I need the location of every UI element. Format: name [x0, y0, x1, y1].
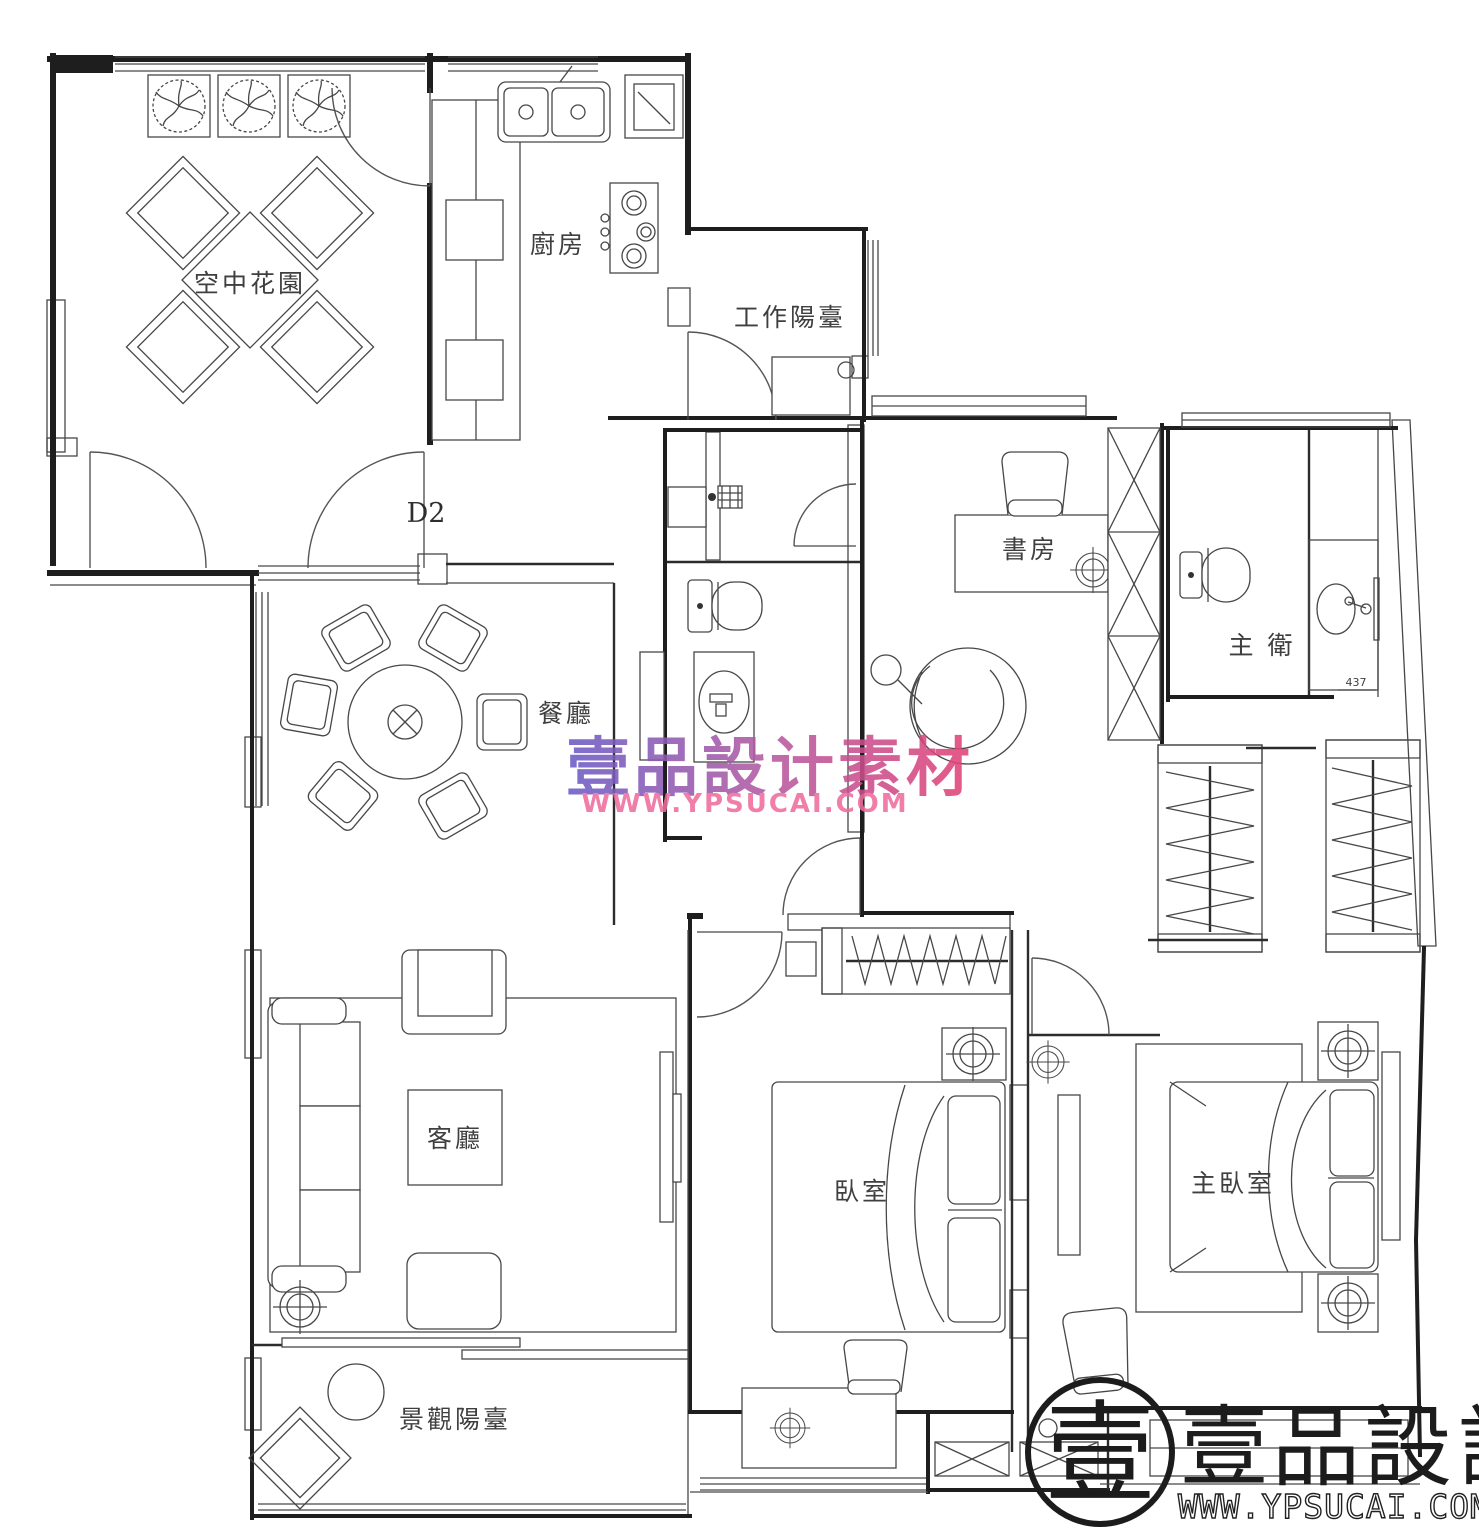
basin — [1309, 540, 1379, 690]
room-label-living: 客廳 — [427, 1124, 483, 1153]
bed — [772, 1082, 1005, 1332]
dining-chair — [305, 759, 380, 833]
kitchen-stove — [601, 183, 658, 273]
closet-a — [1148, 745, 1268, 952]
room-label-master-bedroom: 主臥室 — [1191, 1169, 1275, 1198]
logo-seal-char: 壹 — [1045, 1390, 1155, 1518]
toilet — [688, 580, 762, 632]
shower-head-icon — [708, 486, 742, 508]
lounge-chair — [249, 1407, 351, 1509]
logo: 壹 壹品設計 WWW.YPSUCAI.COM — [1028, 1380, 1479, 1526]
work-balcony-furniture — [772, 357, 854, 415]
lamp-icon — [1026, 1040, 1069, 1083]
bedroom-wardrobe — [822, 928, 1010, 994]
watermark-site-text: WWW.YPSUCAI.COM — [581, 789, 908, 819]
door-code-label: D2 — [407, 498, 446, 529]
ottoman — [407, 1253, 501, 1329]
dimension-437: 437 — [1338, 676, 1376, 690]
door-sky-garden-left — [90, 452, 206, 568]
dresser — [1058, 1095, 1080, 1255]
floor-plan-page: 437 — [0, 0, 1479, 1532]
tree-icon — [218, 75, 280, 137]
kitchen-sink — [498, 66, 610, 142]
room-label-master-bath: 主 衛 — [1229, 631, 1296, 660]
door-shower — [794, 484, 856, 546]
window-bedroom-bottom — [700, 1478, 926, 1490]
door-work-balcony — [688, 332, 776, 420]
window-balcony-bottom — [258, 1504, 686, 1510]
garden-chair — [126, 156, 239, 269]
room-label-study: 書房 — [1002, 535, 1058, 564]
room-label-bedroom: 臥室 — [834, 1177, 890, 1206]
logo-brand-text: 壹品設計 — [1180, 1396, 1479, 1499]
floor-plan-drawing: 437 — [0, 0, 1479, 1532]
tv-cabinet — [660, 1052, 673, 1222]
room-label-view-balcony: 景觀陽臺 — [399, 1405, 511, 1434]
window-master-bath-top — [1182, 413, 1390, 427]
sofa — [268, 998, 360, 1292]
garden-chair — [126, 290, 239, 403]
room-label-kitchen: 廚房 — [530, 230, 586, 259]
door-bathroom — [783, 838, 860, 915]
dining-chair — [280, 673, 339, 737]
window-dining-left — [256, 592, 268, 806]
dimension-label: 437 — [1346, 676, 1367, 689]
garden-chair — [260, 156, 373, 269]
garden-chair — [260, 290, 373, 403]
bedroom-desk — [742, 1340, 907, 1468]
toilet — [1180, 548, 1250, 602]
master-bedroom-furniture — [1026, 1022, 1378, 1395]
room-label-dining: 餐廳 — [538, 699, 594, 728]
study-chair — [1002, 452, 1068, 516]
dining-chair — [416, 602, 489, 673]
armchair — [402, 950, 506, 1034]
window-garden-bottom — [258, 566, 420, 580]
shower-shelf — [668, 487, 706, 527]
study-wardrobe-x — [1108, 428, 1160, 740]
master-bath-fixtures: 437 — [1180, 540, 1379, 690]
window-study-top — [872, 396, 1086, 416]
sliding-door-panel — [462, 1350, 688, 1359]
room-label-work-balcony: 工作陽臺 — [734, 303, 846, 332]
logo-site-text: WWW.YPSUCAI.COM — [1178, 1487, 1479, 1526]
dining-chair — [416, 770, 489, 841]
washing-machine — [772, 357, 850, 415]
sliding-door-panel — [282, 1338, 520, 1347]
window-balcony-right — [868, 240, 878, 356]
closet-b — [1246, 740, 1420, 952]
dining-chair — [319, 602, 392, 673]
bathroom-fixtures — [640, 486, 762, 762]
tv — [673, 1094, 681, 1182]
sky-garden-furniture — [126, 75, 373, 404]
study-furniture — [871, 428, 1160, 764]
bedroom-shelf — [786, 942, 816, 976]
dining-furniture — [280, 602, 527, 841]
balcony-table — [328, 1364, 384, 1420]
tree-icon — [148, 75, 210, 137]
door-master-bedroom — [1032, 958, 1109, 1035]
dining-chair — [477, 694, 527, 750]
door-bedroom — [697, 932, 782, 1017]
room-label-sky-garden: 空中花園 — [194, 269, 306, 298]
center-watermark: 壹品設计素材 WWW.YPSUCAI.COM — [566, 732, 974, 819]
